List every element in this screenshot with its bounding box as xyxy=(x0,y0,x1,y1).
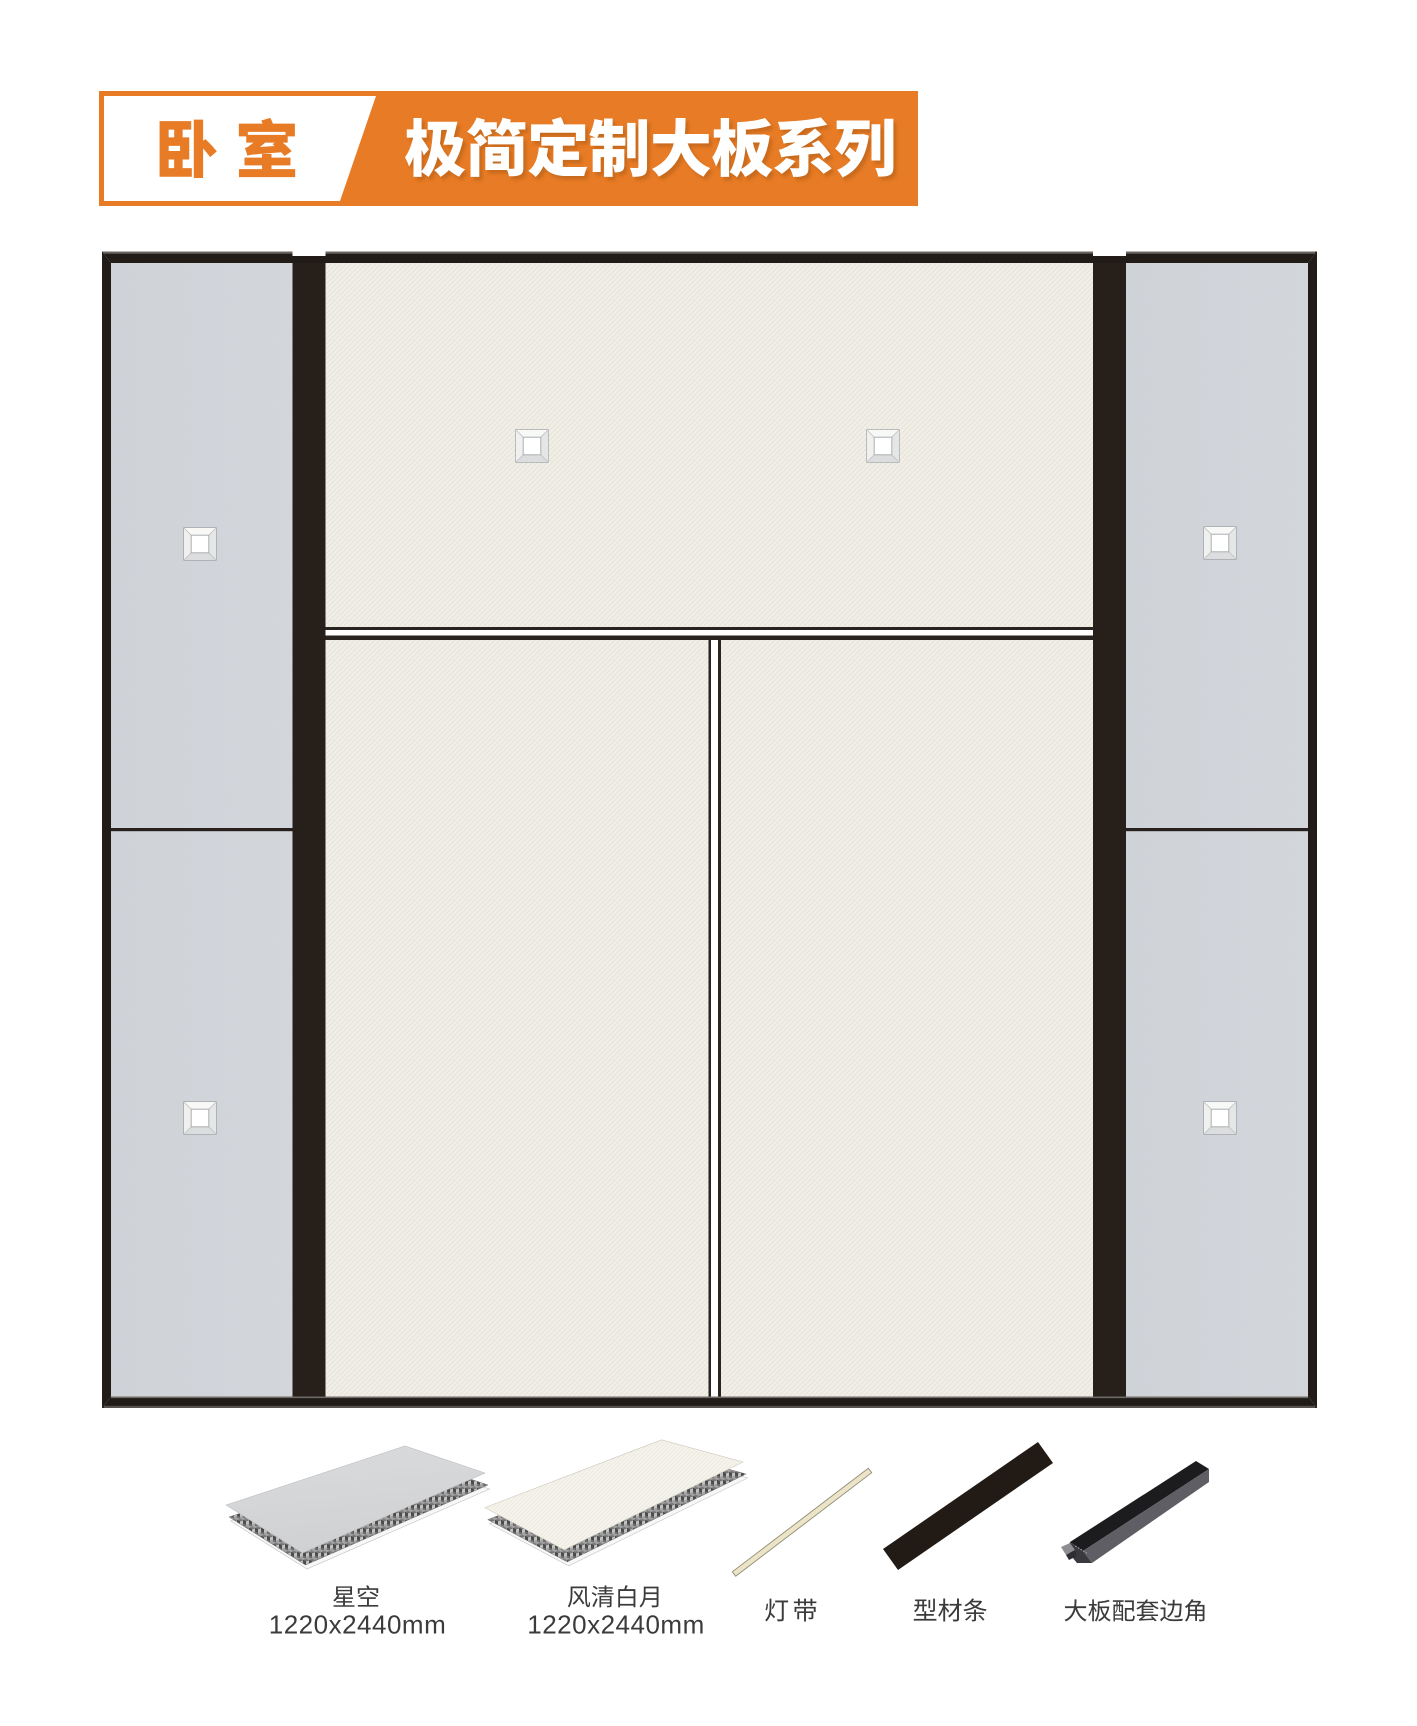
svg-text:1220x2440mm: 1220x2440mm xyxy=(527,1610,705,1640)
svg-text:1220x2440mm: 1220x2440mm xyxy=(269,1610,447,1640)
